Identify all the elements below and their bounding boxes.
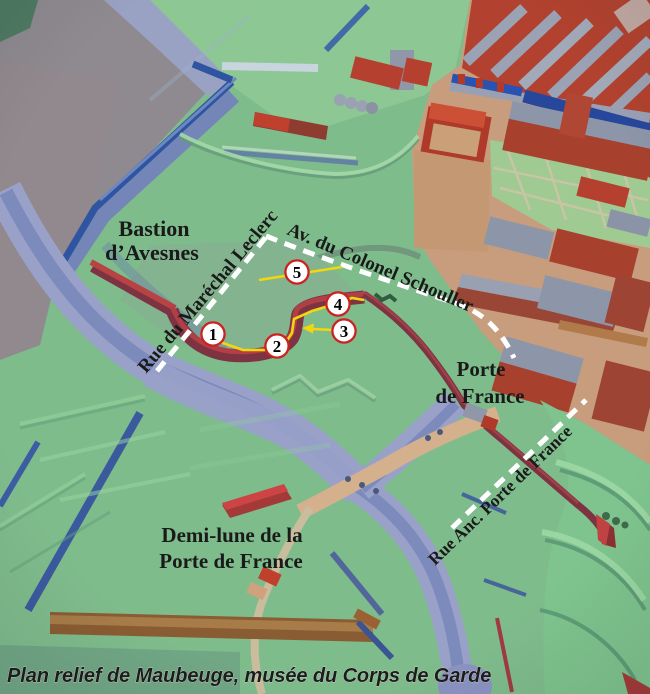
svg-text:2: 2 [273,337,282,356]
svg-text:1: 1 [209,325,218,344]
svg-text:Porte: Porte [457,357,506,381]
svg-text:d’Avesnes: d’Avesnes [105,240,199,265]
svg-text:3: 3 [340,322,349,341]
svg-text:Bastion: Bastion [119,216,190,241]
svg-text:Porte de France: Porte de France [159,549,302,573]
svg-text:Demi-lune de la: Demi-lune de la [161,523,303,547]
svg-text:5: 5 [293,263,302,282]
svg-text:de France: de France [435,384,524,408]
svg-text:4: 4 [334,295,343,314]
svg-text:Plan relief de Maubeuge, musée: Plan relief de Maubeuge, musée du Corps … [7,665,491,687]
